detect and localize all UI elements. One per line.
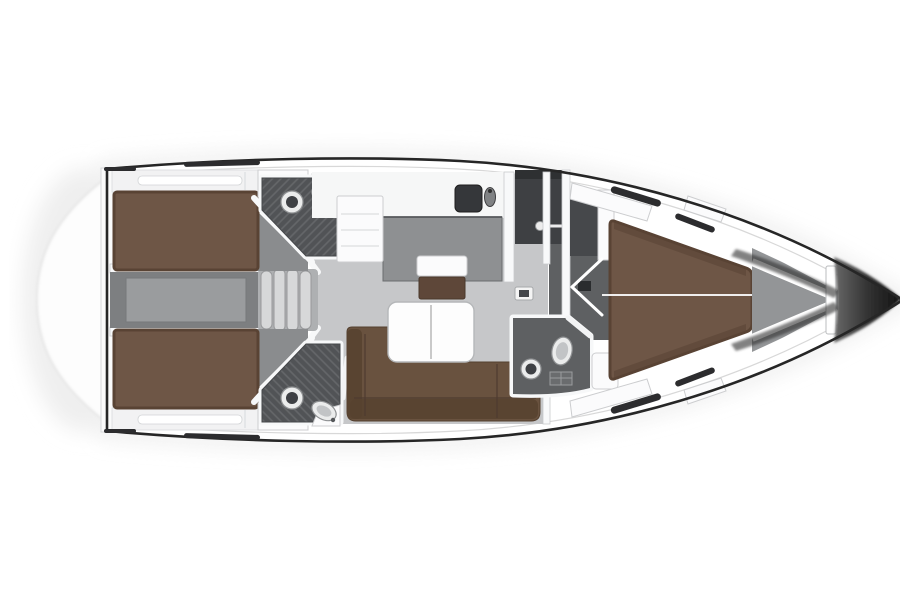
sofa-backrest xyxy=(350,399,538,419)
step xyxy=(261,271,272,329)
step xyxy=(274,269,285,331)
sofa-armrest xyxy=(347,329,362,419)
galley-end-wall xyxy=(504,172,514,282)
boat-floorplan xyxy=(0,0,900,600)
seat-bench xyxy=(419,277,465,299)
door-latch xyxy=(578,281,591,291)
yacht-floorplan-canvas xyxy=(0,0,900,600)
step xyxy=(300,271,311,329)
galley-cabinet xyxy=(337,196,383,262)
galley-faucet xyxy=(485,188,496,207)
step xyxy=(287,269,298,331)
saloon-fwd-wall-top xyxy=(543,172,550,264)
engine-hatch xyxy=(126,278,246,322)
sideboard-top xyxy=(417,256,467,276)
galley-sink xyxy=(455,185,482,212)
shower-grate xyxy=(550,372,572,385)
toilet-fixture xyxy=(521,359,541,379)
floor-vent xyxy=(515,287,533,300)
shower-room xyxy=(515,179,562,244)
bow-bulkhead xyxy=(826,266,836,334)
companionway-steps xyxy=(258,269,318,331)
